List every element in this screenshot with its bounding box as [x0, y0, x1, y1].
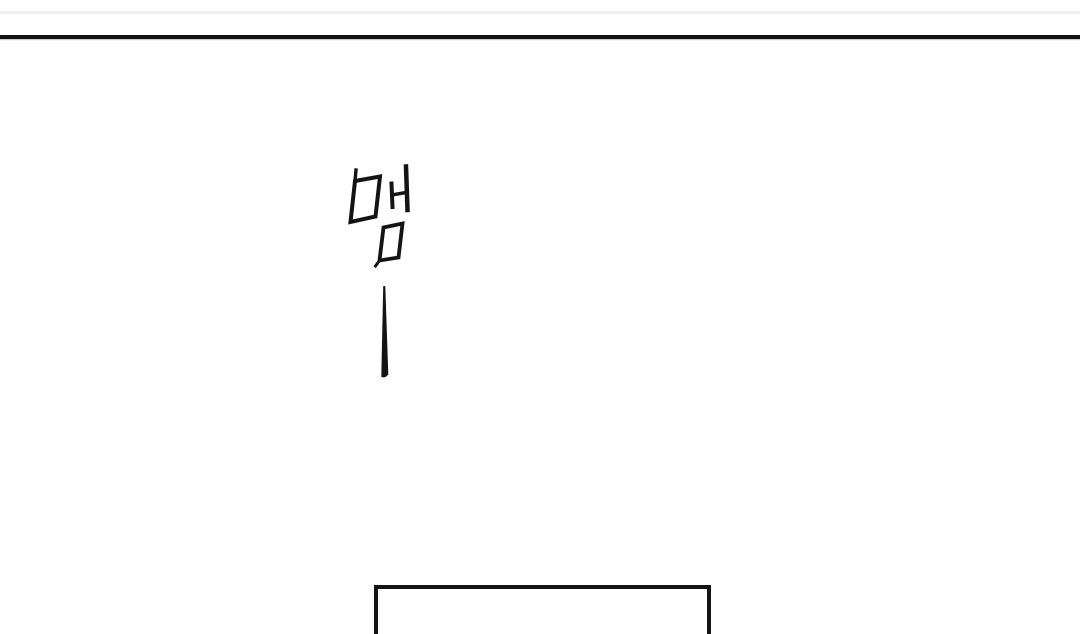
sfx-mieum-final — [376, 224, 403, 267]
bottom-panel-frame — [374, 585, 711, 634]
sfx-ae-vowel — [392, 167, 408, 211]
page-gap-shadow — [0, 11, 1080, 14]
sfx-elongation-dash — [381, 286, 388, 378]
panel-top-border — [0, 35, 1080, 39]
sfx-text-maem — [330, 155, 420, 390]
sfx-mieum-initial — [351, 170, 381, 222]
webtoon-viewer-canvas[interactable] — [0, 0, 1080, 634]
